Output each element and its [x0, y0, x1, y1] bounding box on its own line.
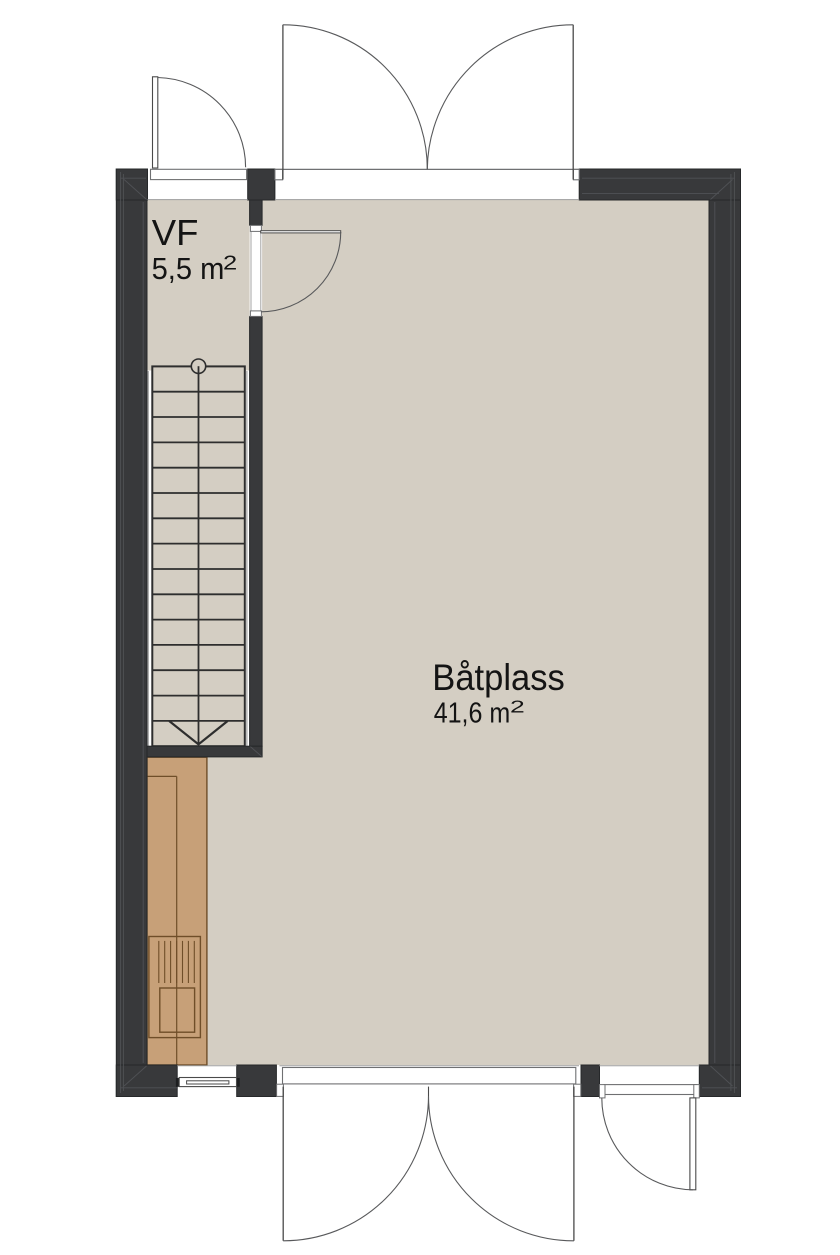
svg-text:VF: VF [152, 212, 199, 253]
svg-text:41,6 m: 41,6 m [434, 697, 511, 729]
svg-text:5,5 m: 5,5 m [152, 251, 225, 286]
svg-text:Båtplass: Båtplass [432, 656, 565, 698]
svg-text:2: 2 [223, 251, 237, 274]
svg-text:2: 2 [510, 697, 525, 716]
